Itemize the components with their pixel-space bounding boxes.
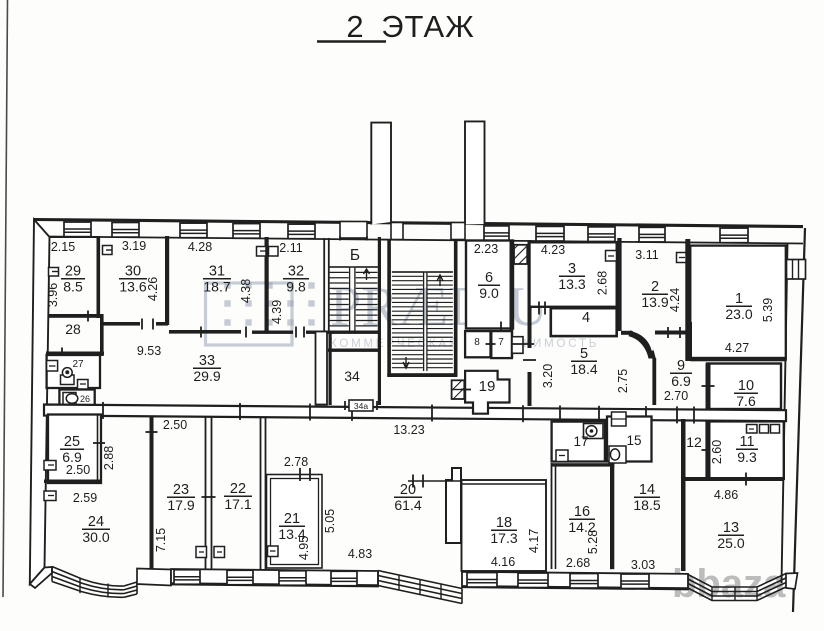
svg-text:33: 33 bbox=[199, 353, 215, 369]
svg-text:31: 31 bbox=[209, 264, 225, 280]
svg-text:34: 34 bbox=[344, 368, 360, 384]
svg-text:2.15: 2.15 bbox=[51, 240, 75, 254]
svg-text:17: 17 bbox=[573, 434, 588, 449]
svg-text:11: 11 bbox=[739, 434, 754, 450]
svg-text:2.11: 2.11 bbox=[279, 241, 302, 255]
svg-text:9.0: 9.0 bbox=[479, 285, 499, 301]
svg-text:8.5: 8.5 bbox=[63, 279, 83, 295]
svg-text:30.0: 30.0 bbox=[82, 529, 109, 545]
svg-text:2.50: 2.50 bbox=[66, 463, 90, 477]
svg-text:3.03: 3.03 bbox=[631, 558, 655, 572]
svg-text:18: 18 bbox=[496, 515, 512, 531]
svg-text:2.78: 2.78 bbox=[284, 455, 308, 469]
svg-text:24: 24 bbox=[88, 514, 104, 530]
svg-text:4.39: 4.39 bbox=[270, 300, 284, 324]
svg-text:8: 8 bbox=[474, 337, 480, 348]
svg-text:4.27: 4.27 bbox=[725, 341, 749, 355]
svg-text:3.19: 3.19 bbox=[122, 239, 146, 253]
svg-text:26: 26 bbox=[80, 394, 90, 404]
svg-text:4.95: 4.95 bbox=[297, 536, 311, 560]
svg-text:2: 2 bbox=[346, 9, 363, 44]
svg-text:5: 5 bbox=[580, 346, 588, 362]
svg-text:6: 6 bbox=[485, 270, 493, 286]
svg-text:2.68: 2.68 bbox=[596, 271, 610, 295]
svg-text:19: 19 bbox=[479, 378, 496, 395]
svg-text:7: 7 bbox=[498, 337, 504, 348]
svg-text:23: 23 bbox=[173, 482, 189, 498]
svg-text:4: 4 bbox=[582, 310, 590, 326]
svg-text:Б: Б bbox=[350, 247, 360, 264]
svg-text:29: 29 bbox=[65, 264, 81, 280]
svg-text:32: 32 bbox=[288, 264, 304, 280]
svg-text:2.75: 2.75 bbox=[616, 369, 630, 393]
svg-text:9.8: 9.8 bbox=[286, 279, 306, 295]
svg-text:13.9: 13.9 bbox=[641, 294, 668, 310]
svg-text:6.9: 6.9 bbox=[671, 373, 691, 389]
svg-text:2.68: 2.68 bbox=[566, 556, 590, 570]
svg-text:2.70: 2.70 bbox=[664, 389, 688, 403]
svg-text:7.6: 7.6 bbox=[736, 393, 756, 409]
svg-text:9.53: 9.53 bbox=[137, 344, 161, 358]
svg-text:4.23: 4.23 bbox=[541, 243, 565, 257]
svg-text:10: 10 bbox=[738, 378, 754, 394]
svg-text:ЭТАЖ: ЭТАЖ bbox=[381, 9, 475, 44]
svg-text:7.15: 7.15 bbox=[154, 528, 168, 552]
svg-text:4.26: 4.26 bbox=[146, 277, 160, 301]
svg-text:17.9: 17.9 bbox=[167, 497, 194, 513]
svg-text:22: 22 bbox=[230, 481, 246, 497]
svg-text:4.38: 4.38 bbox=[239, 279, 253, 303]
svg-text:21: 21 bbox=[284, 511, 300, 527]
svg-text:4.17: 4.17 bbox=[527, 529, 541, 553]
svg-text:18.7: 18.7 bbox=[203, 279, 230, 295]
svg-text:3.96: 3.96 bbox=[46, 283, 60, 307]
svg-text:3: 3 bbox=[568, 261, 576, 277]
svg-text:1: 1 bbox=[735, 291, 743, 307]
svg-text:2.23: 2.23 bbox=[474, 242, 498, 256]
svg-text:14: 14 bbox=[639, 482, 655, 498]
svg-text:13.23: 13.23 bbox=[393, 423, 424, 437]
svg-text:13.6: 13.6 bbox=[119, 279, 146, 295]
svg-text:2.59: 2.59 bbox=[73, 491, 97, 505]
svg-text:30: 30 bbox=[125, 264, 141, 280]
svg-text:5.39: 5.39 bbox=[761, 298, 775, 322]
svg-text:3.20: 3.20 bbox=[541, 364, 555, 388]
svg-text:13.3: 13.3 bbox=[558, 276, 585, 292]
svg-text:2.60: 2.60 bbox=[710, 440, 724, 464]
svg-text:18.4: 18.4 bbox=[570, 361, 597, 377]
svg-text:29.9: 29.9 bbox=[193, 368, 220, 384]
svg-text:12: 12 bbox=[686, 434, 702, 450]
svg-text:28: 28 bbox=[65, 321, 81, 337]
svg-text:5.28: 5.28 bbox=[586, 530, 600, 554]
svg-text:4.16: 4.16 bbox=[491, 555, 515, 569]
svg-text:25.0: 25.0 bbox=[717, 535, 744, 551]
svg-text:34а: 34а bbox=[354, 401, 368, 411]
svg-text:9: 9 bbox=[677, 358, 685, 374]
svg-text:27: 27 bbox=[72, 359, 84, 370]
svg-text:18.5: 18.5 bbox=[633, 497, 660, 513]
svg-text:4.24: 4.24 bbox=[668, 288, 682, 312]
svg-text:25: 25 bbox=[64, 434, 80, 450]
svg-text:2.88: 2.88 bbox=[102, 446, 116, 470]
svg-text:15: 15 bbox=[626, 433, 641, 448]
svg-text:3.11: 3.11 bbox=[635, 248, 658, 262]
svg-text:17.1: 17.1 bbox=[224, 496, 251, 512]
svg-text:4.83: 4.83 bbox=[348, 547, 372, 561]
svg-text:9.3: 9.3 bbox=[737, 449, 757, 465]
svg-text:2.50: 2.50 bbox=[163, 418, 187, 432]
svg-text:2: 2 bbox=[651, 279, 659, 295]
svg-text:17.3: 17.3 bbox=[490, 530, 517, 546]
svg-text:5.05: 5.05 bbox=[323, 509, 337, 533]
svg-text:13: 13 bbox=[723, 520, 739, 536]
svg-text:4.86: 4.86 bbox=[714, 488, 738, 502]
svg-text:61.4: 61.4 bbox=[394, 497, 421, 513]
svg-text:4.28: 4.28 bbox=[188, 240, 212, 254]
svg-text:23.0: 23.0 bbox=[725, 306, 752, 322]
svg-text:16: 16 bbox=[574, 504, 590, 520]
